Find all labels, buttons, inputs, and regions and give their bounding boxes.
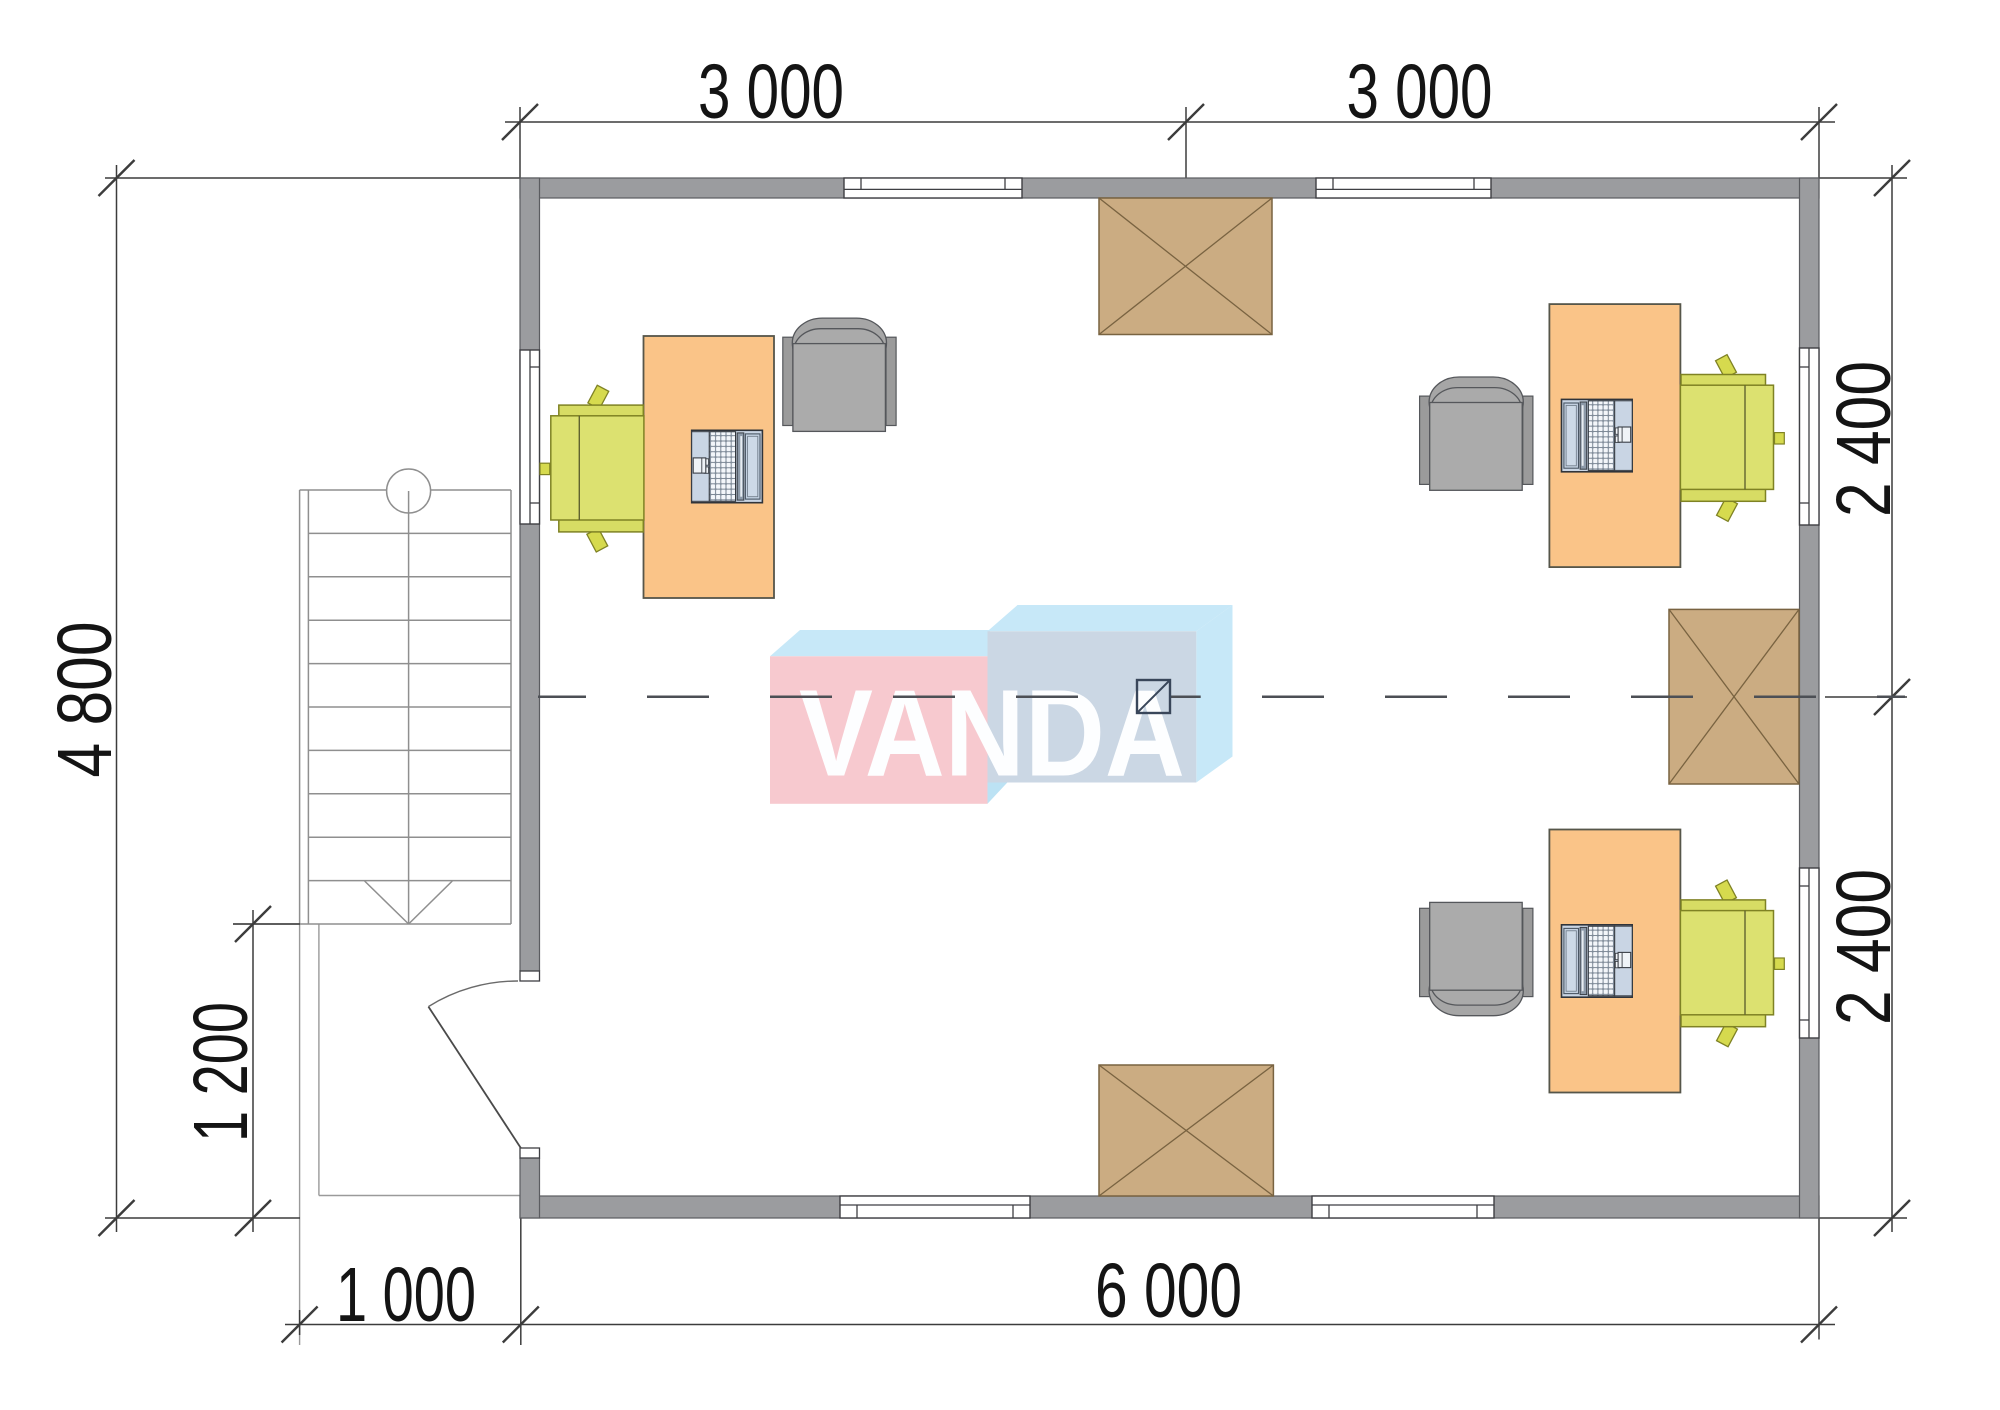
svg-text:3 000: 3 000 [1347, 49, 1493, 135]
svg-text:4 800: 4 800 [42, 622, 128, 778]
svg-text:2 400: 2 400 [1821, 869, 1907, 1025]
svg-text:VANDA: VANDA [799, 666, 1185, 803]
svg-text:1 000: 1 000 [336, 1252, 476, 1338]
svg-text:2 400: 2 400 [1821, 361, 1907, 517]
svg-text:6 000: 6 000 [1095, 1248, 1242, 1334]
svg-text:3 000: 3 000 [698, 49, 844, 135]
svg-text:1 200: 1 200 [178, 1002, 264, 1142]
